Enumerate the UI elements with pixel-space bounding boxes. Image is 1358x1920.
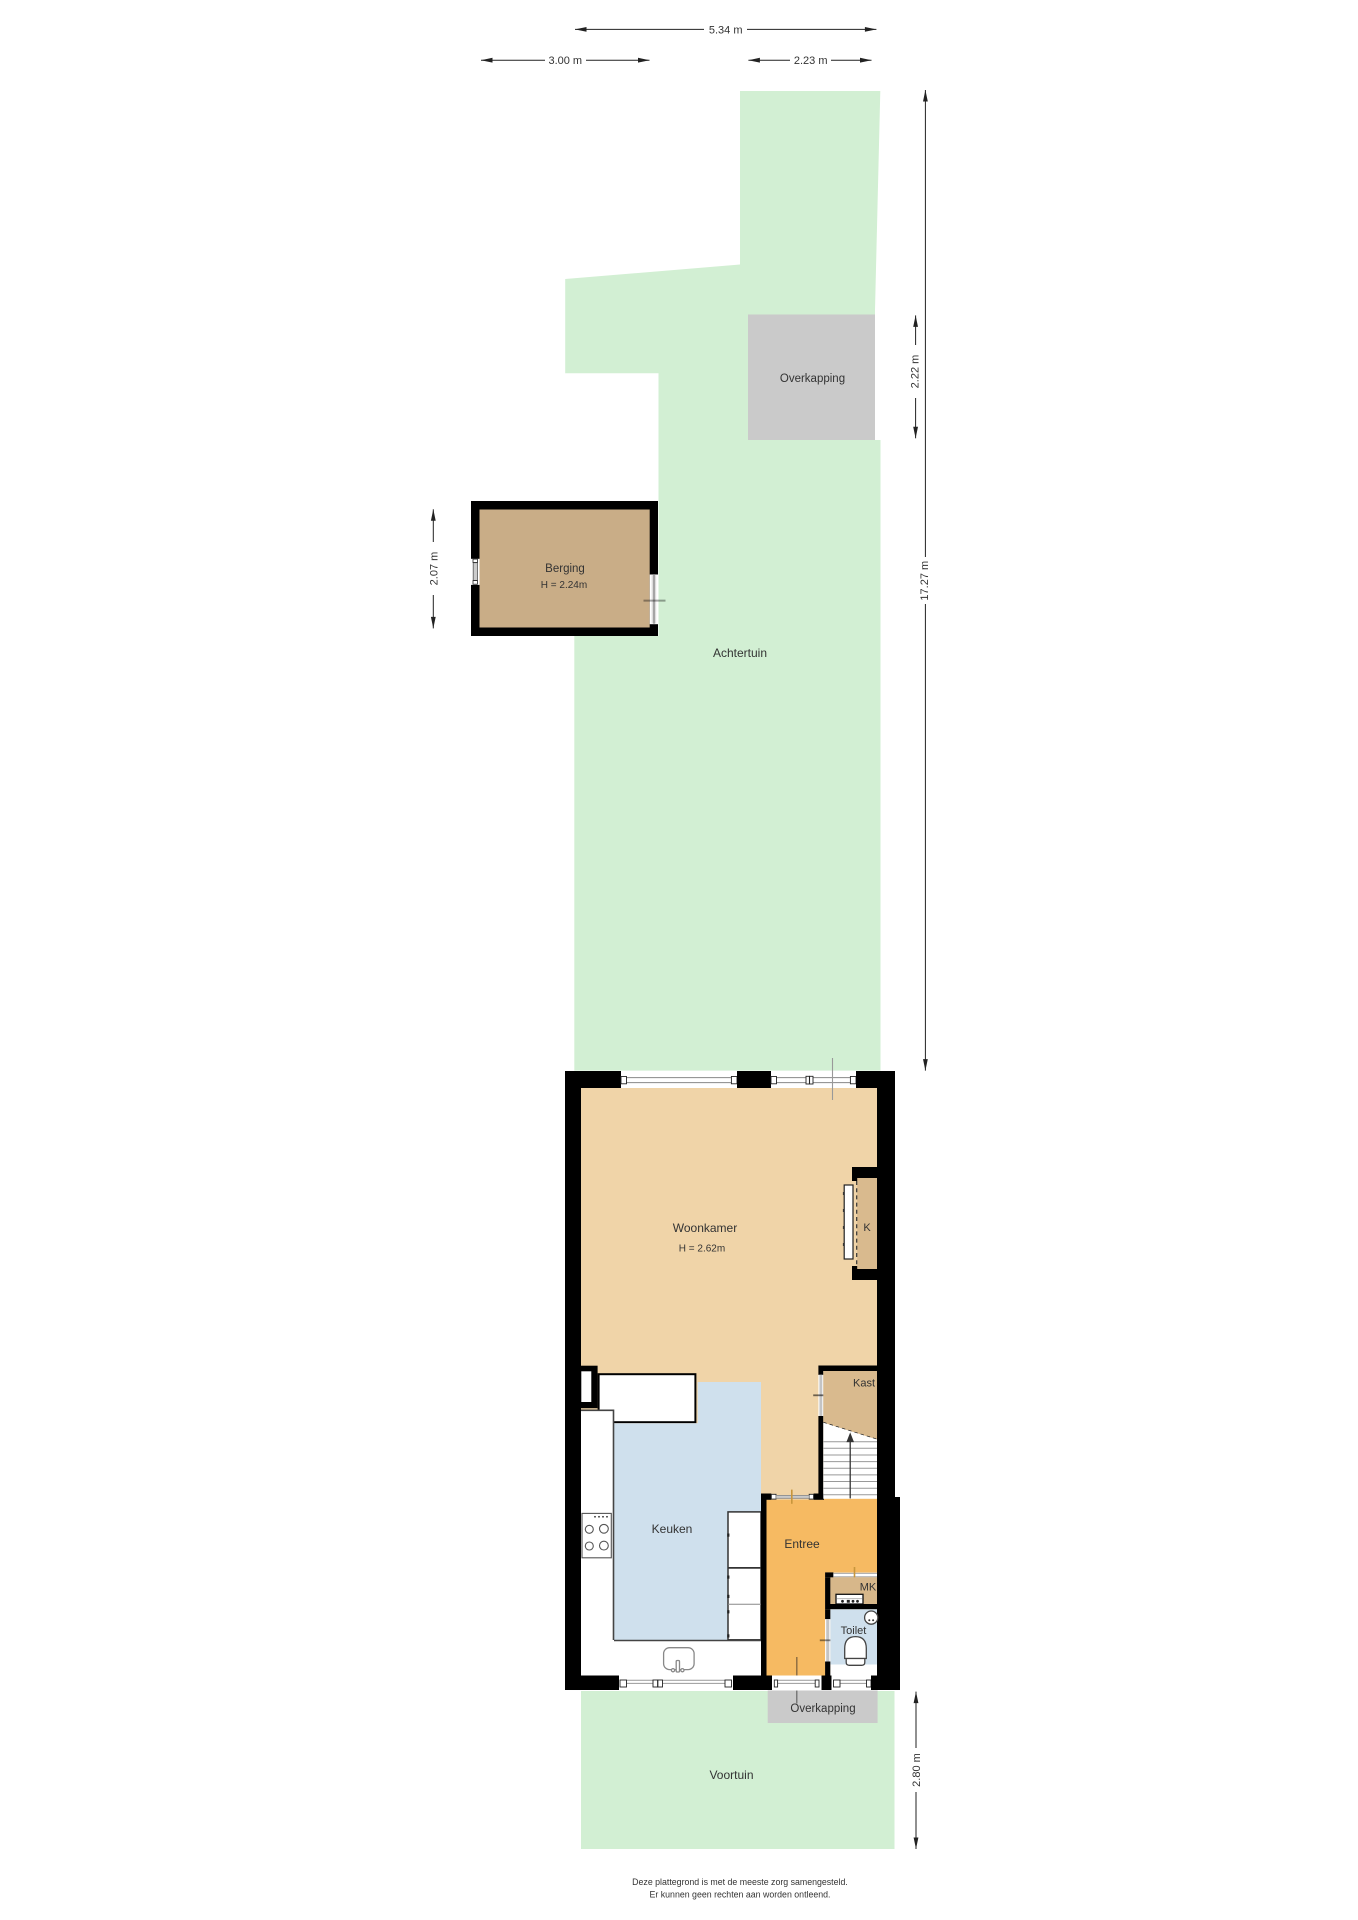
svg-text:Entree: Entree bbox=[784, 1537, 820, 1551]
svg-text:2.23 m: 2.23 m bbox=[794, 55, 828, 67]
svg-text:17.27 m: 17.27 m bbox=[919, 561, 931, 601]
svg-text:2.22 m: 2.22 m bbox=[910, 355, 922, 389]
svg-text:Achtertuin: Achtertuin bbox=[713, 646, 767, 660]
svg-text:2.07 m: 2.07 m bbox=[428, 552, 440, 586]
svg-text:Overkapping: Overkapping bbox=[780, 373, 845, 385]
svg-text:Keuken: Keuken bbox=[652, 1522, 693, 1536]
svg-text:3.00 m: 3.00 m bbox=[548, 55, 582, 67]
svg-text:5.34 m: 5.34 m bbox=[709, 24, 743, 36]
svg-text:Woonkamer: Woonkamer bbox=[673, 1221, 737, 1235]
svg-text:2.80 m: 2.80 m bbox=[911, 1753, 923, 1787]
svg-text:Overkapping: Overkapping bbox=[790, 1703, 855, 1715]
svg-text:Berging: Berging bbox=[545, 563, 585, 575]
svg-text:Deze plattegrond is met de mee: Deze plattegrond is met de meeste zorg s… bbox=[632, 1877, 848, 1887]
svg-text:Toilet: Toilet bbox=[841, 1625, 867, 1637]
svg-text:Er kunnen geen rechten aan wor: Er kunnen geen rechten aan worden ontlee… bbox=[650, 1890, 831, 1900]
svg-text:MK: MK bbox=[860, 1582, 877, 1594]
svg-text:H = 2.24m: H = 2.24m bbox=[541, 580, 587, 591]
svg-text:Voortuin: Voortuin bbox=[709, 1768, 753, 1782]
svg-text:K: K bbox=[863, 1222, 871, 1234]
svg-text:H = 2.62m: H = 2.62m bbox=[679, 1244, 725, 1255]
svg-text:Kast: Kast bbox=[853, 1378, 875, 1390]
